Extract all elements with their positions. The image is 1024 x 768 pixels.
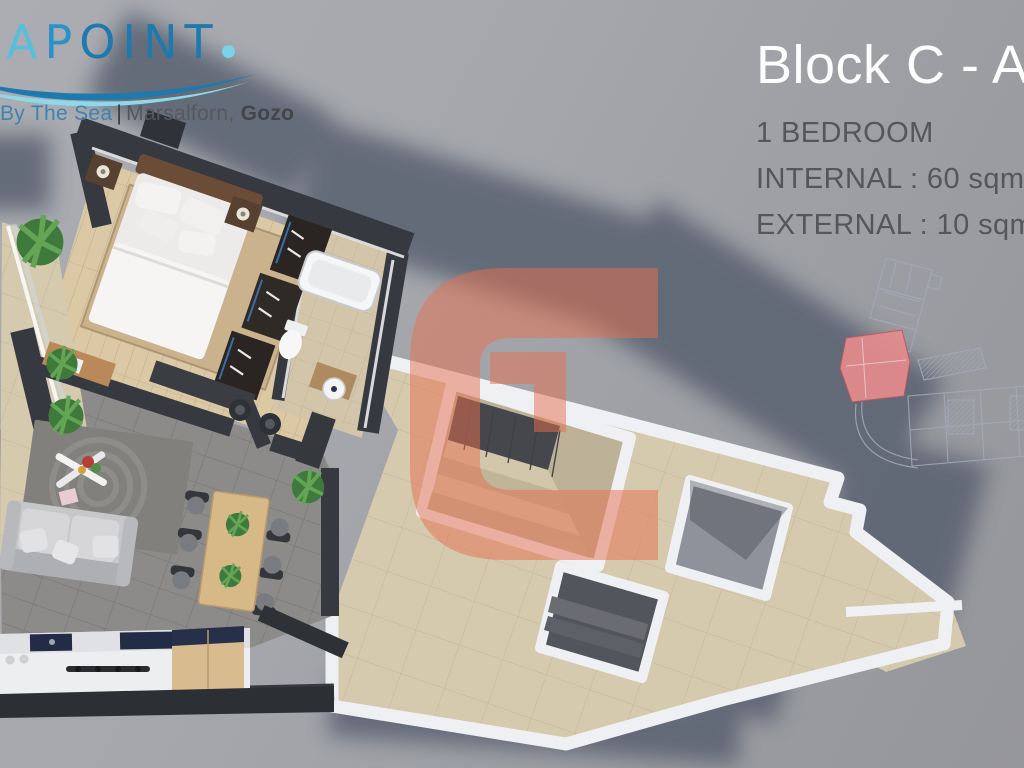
unit-bedrooms: 1 BEDROOM	[756, 110, 1024, 156]
logo-letter: A	[6, 15, 44, 69]
logo-dot-icon	[222, 45, 235, 58]
brand-wordmark: EAPOINT	[0, 16, 320, 68]
tagline-separator: |	[112, 102, 126, 125]
brand-logo: EAPOINT By The Sea|Marsalforn, Gozo	[0, 16, 320, 116]
tagline-location: Marsalforn,	[126, 102, 234, 125]
page: EAPOINT By The Sea|Marsalforn, Gozo Bloc…	[0, 0, 1024, 768]
brand-tagline: By The Sea|Marsalforn, Gozo	[0, 102, 294, 126]
tagline-by-the-sea: By The Sea	[0, 102, 112, 125]
logo-letter: O	[79, 15, 122, 69]
unit-info: Block C - A 1 BEDROOM INTERNAL : 60 sqm …	[756, 34, 1024, 248]
logo-letter: P	[45, 15, 80, 69]
unit-internal-area: INTERNAL : 60 sqm	[756, 156, 1024, 202]
logo-letter: T	[185, 15, 220, 69]
watermark-logo	[410, 268, 658, 560]
logo-letter: N	[143, 15, 184, 69]
unit-title: Block C - A	[756, 34, 1024, 96]
tagline-location-bold: Gozo	[241, 102, 295, 125]
unit-external-area: EXTERNAL : 10 sqm	[756, 202, 1024, 248]
logo-letter: I	[123, 15, 144, 69]
